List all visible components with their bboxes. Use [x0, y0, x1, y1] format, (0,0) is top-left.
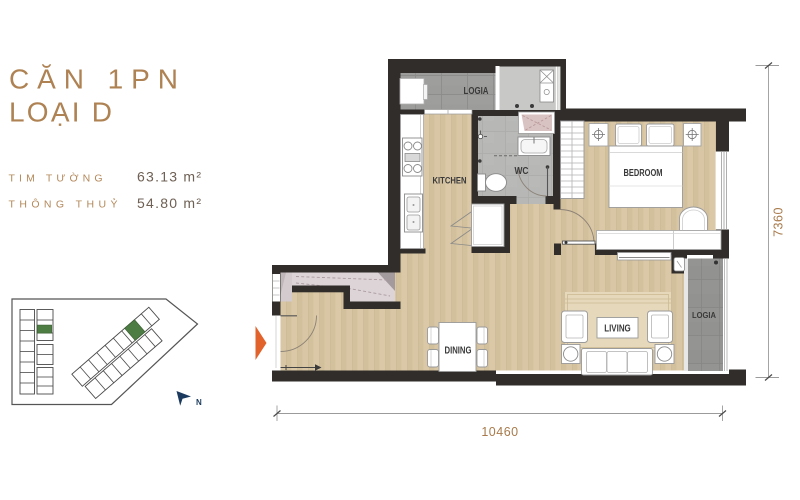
- svg-text:TIM TƯỜNG: TIM TƯỜNG: [9, 172, 103, 185]
- svg-text:7360: 7360: [772, 207, 786, 237]
- svg-text:63.13 m²: 63.13 m²: [137, 169, 201, 185]
- svg-text:LOGIA: LOGIA: [464, 85, 489, 97]
- svg-text:N: N: [196, 398, 202, 407]
- svg-text:54.80 m²: 54.80 m²: [137, 195, 201, 211]
- svg-text:LIVING: LIVING: [604, 323, 631, 335]
- svg-text:WC: WC: [515, 165, 529, 177]
- svg-text:KITCHEN: KITCHEN: [433, 176, 467, 187]
- svg-text:BEDROOM: BEDROOM: [624, 167, 663, 179]
- svg-text:10460: 10460: [481, 425, 518, 439]
- svg-text:LOGIA: LOGIA: [692, 310, 716, 320]
- svg-text:THÔNG THUỶ: THÔNG THUỶ: [9, 198, 118, 211]
- svg-text:CĂN 1PN: CĂN 1PN: [9, 64, 178, 95]
- svg-text:LOẠI D: LOẠI D: [9, 97, 112, 128]
- svg-text:DINING: DINING: [445, 345, 472, 357]
